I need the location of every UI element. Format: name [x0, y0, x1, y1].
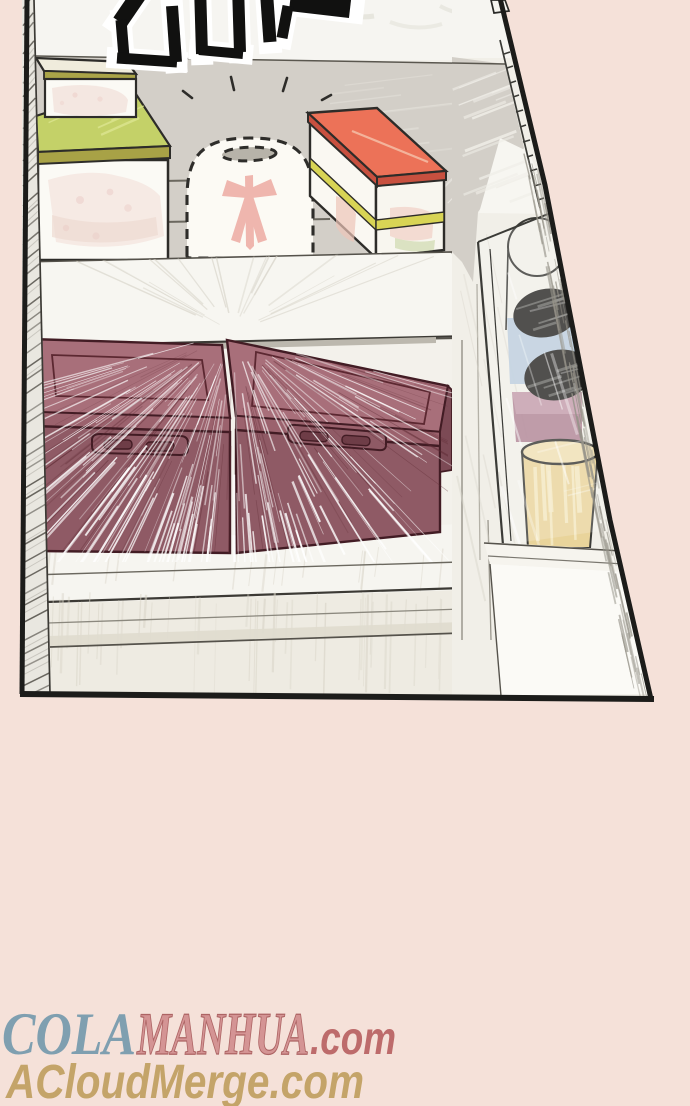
svg-text:ACloudMerge.com: ACloudMerge.com — [5, 1056, 364, 1106]
